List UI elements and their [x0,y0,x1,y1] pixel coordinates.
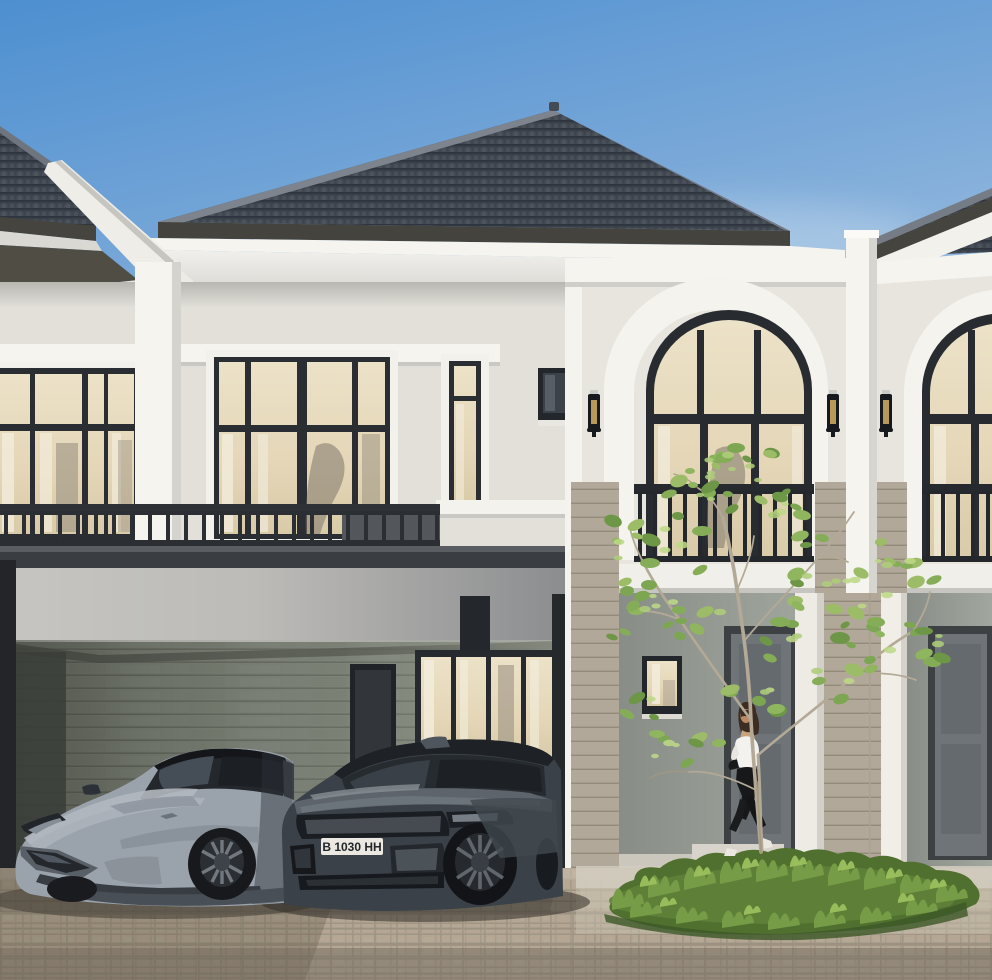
svg-text:B 1030 HH: B 1030 HH [322,840,381,854]
